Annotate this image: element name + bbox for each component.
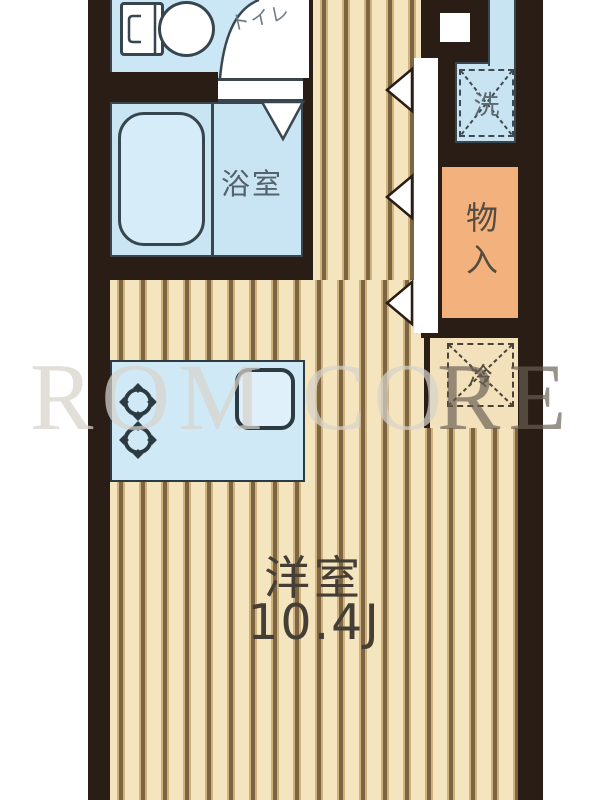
closet-door-strip xyxy=(414,58,438,333)
toilet-bowl xyxy=(158,1,215,57)
main-room-size-label: 10.4J xyxy=(110,594,518,651)
meter-box xyxy=(440,13,470,42)
hallway-wood-floor xyxy=(313,0,421,280)
washer-label: 洗 xyxy=(459,69,514,137)
bathroom-bottom-wall xyxy=(88,256,313,280)
watermark-text-right: RE xyxy=(437,350,574,445)
floor-plan: トイレ 浴室 洗 物入 冷 洋室 10.4J ROM CO RE xyxy=(0,0,600,800)
bathtub xyxy=(118,112,205,246)
bathroom-divider-wall xyxy=(211,102,214,257)
bathroom-label: 浴室 xyxy=(221,161,283,203)
washer-space-upper xyxy=(488,0,516,66)
bathroom-door-opening xyxy=(218,78,303,102)
watermark-text-left: ROM CO xyxy=(30,350,450,445)
toilet-bathroom-wall xyxy=(110,72,218,102)
toilet-right-wall-line xyxy=(309,0,313,78)
storage-label: 物入 xyxy=(442,167,518,318)
